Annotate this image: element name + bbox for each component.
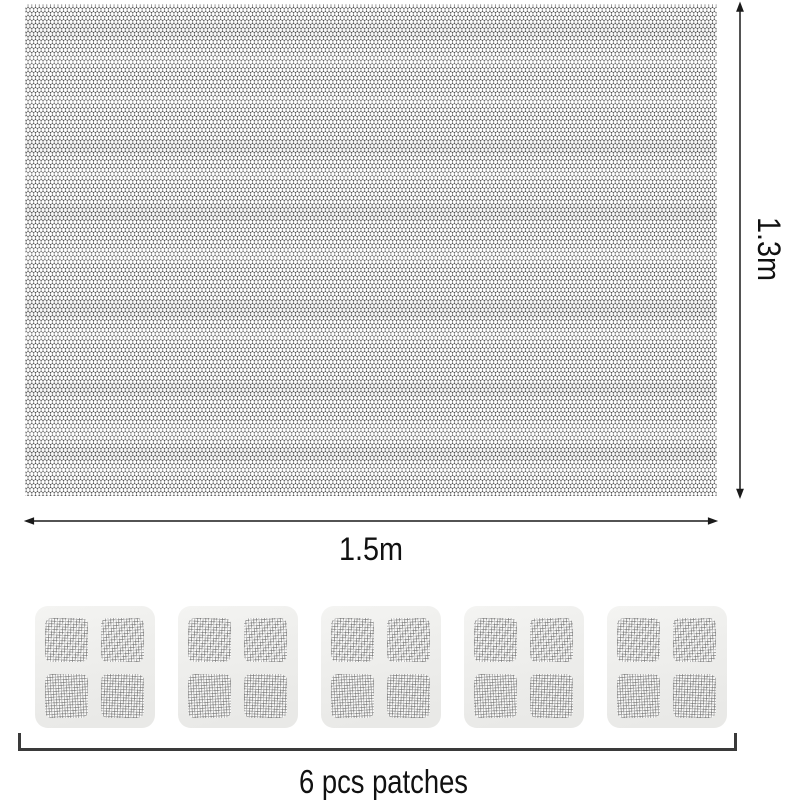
svg-text:1.3m: 1.3m [751,217,787,281]
svg-text:6 pcs patches: 6 pcs patches [299,763,468,800]
svg-text:1.5m: 1.5m [339,531,403,567]
